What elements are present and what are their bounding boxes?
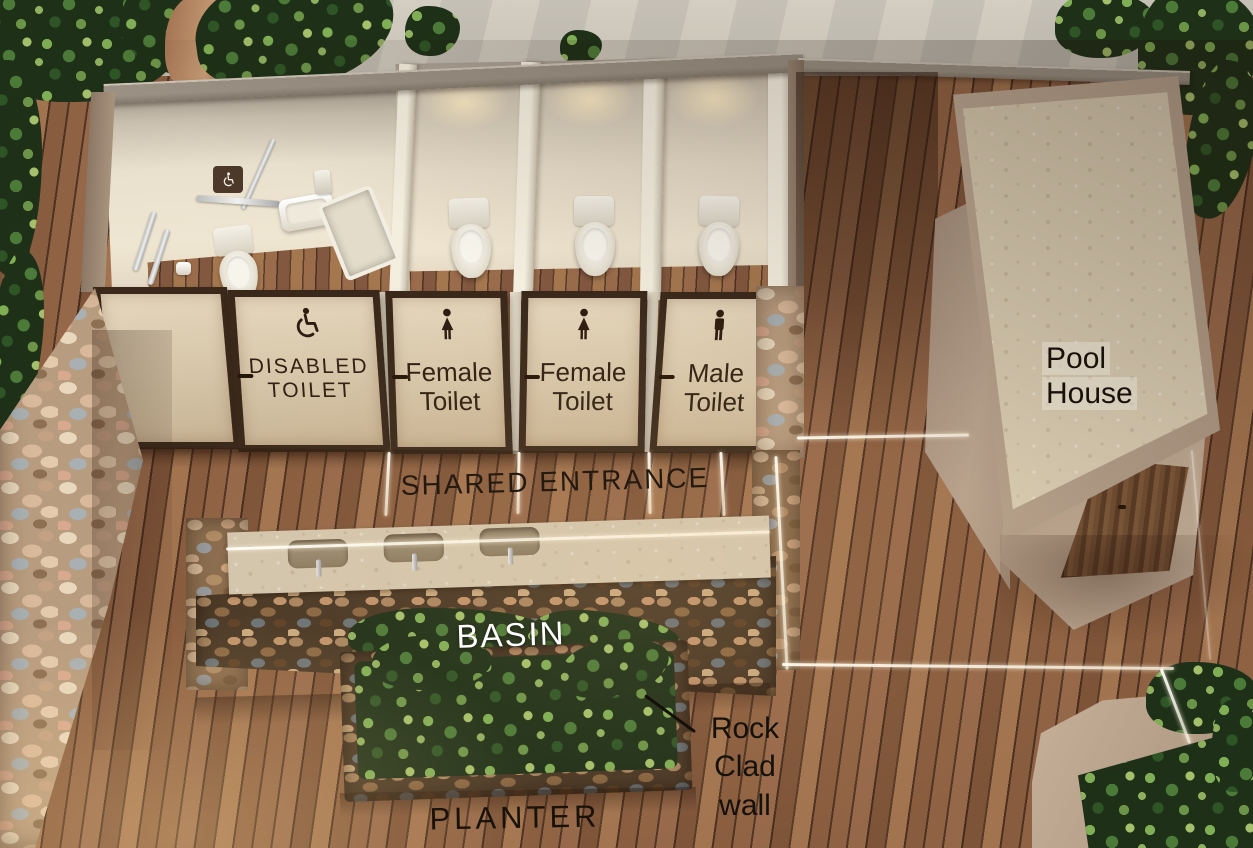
planter-label: PLANTER [420,798,611,837]
pool-house-label: Pool House [1042,342,1162,411]
pool-house-roof: Pool House [942,76,1220,542]
corner-planter-spill-2 [1212,700,1253,792]
pool-house-label-line2: House [1042,377,1137,410]
door-label-line2: Toilet [552,386,613,416]
toilet-block-3d-plan: DISABLEDTOILET FemaleToilet FemaleToilet… [0,0,1253,848]
accessible-sign-plaque [213,166,243,193]
stall-ceiling-light-3 [668,74,760,128]
tap-3 [508,548,514,565]
wheelchair-icon [284,305,327,343]
rock-clad-wall-label-line1: Rock [711,712,779,745]
tap-1 [316,560,322,577]
soap-dispenser [314,169,332,195]
door-label-line1: DISABLED [248,355,369,378]
pool-house-label-line1: Pool [1042,342,1110,375]
stall-partition-3 [640,60,665,300]
toilet-paper-roll [176,262,191,275]
door-label-line1: Female [539,357,626,387]
door-label-line2: Toilet [683,387,746,417]
stall-toilet-1 [446,197,495,291]
courtyard-shadow [796,72,938,452]
rock-clad-pillar-right [756,286,804,458]
toilet-bowl [698,221,740,276]
basin-label: BASIN [445,614,576,657]
stall-ceiling-light-2 [545,76,635,128]
toilet-bowl [575,222,615,276]
female-icon [433,306,462,346]
door-female-toilet-1: FemaleToilet [385,291,513,454]
left-wall-deck-shadow [92,330,172,750]
pool-house-base-shadow [1000,535,1253,647]
rock-clad-wall-label-line3: wall [719,789,771,822]
door-handle [524,375,540,379]
door-label-line1: Female [405,357,493,387]
door-female-toilet-2: FemaleToilet [519,291,648,453]
door-handle [392,375,408,379]
door-label: FemaleToilet [526,358,639,416]
stall-toilet-2 [572,196,618,288]
door-label-line2: TOILET [267,379,354,402]
door-disabled-toilet: DISABLEDTOILET [227,290,390,452]
rock-clad-wall-label: Rock Clad wall [690,710,800,825]
tap-2 [412,554,418,571]
door-handle [237,374,253,378]
accessible-sign-icon [219,171,237,189]
door-label-line2: Toilet [419,386,481,416]
door-label: DISABLEDTOILET [239,355,380,402]
male-icon [704,307,735,347]
door-label: MaleToilet [659,359,771,417]
door-handle [659,375,675,379]
door-label: FemaleToilet [394,358,504,416]
rock-clad-wall-label-line2: Clad [714,750,776,783]
stall-toilet-3 [694,195,743,289]
female-icon [569,306,598,346]
door-label-line1: Male [687,358,745,388]
toilet-bowl [450,223,492,278]
